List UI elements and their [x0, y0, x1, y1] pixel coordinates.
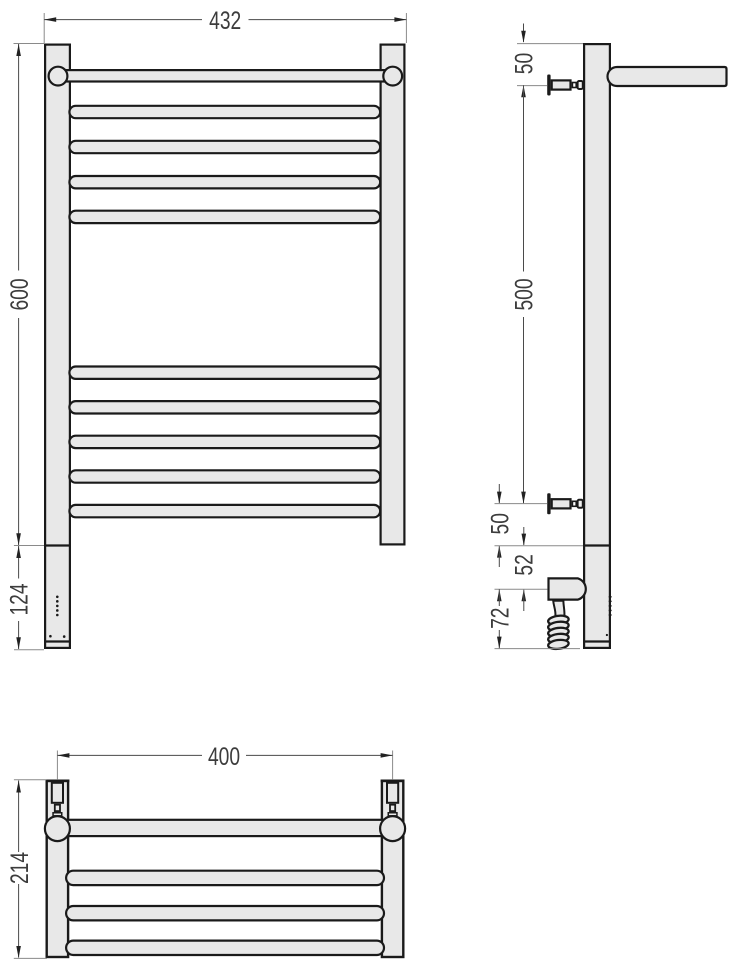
svg-text:214: 214: [5, 852, 33, 884]
svg-text:50: 50: [486, 513, 514, 534]
svg-text:500: 500: [510, 278, 538, 310]
svg-text:52: 52: [510, 554, 538, 575]
svg-text:600: 600: [5, 278, 33, 310]
svg-text:72: 72: [486, 607, 514, 628]
svg-text:432: 432: [209, 6, 241, 34]
svg-text:50: 50: [510, 53, 538, 74]
svg-text:124: 124: [5, 583, 33, 615]
svg-text:400: 400: [208, 742, 240, 770]
